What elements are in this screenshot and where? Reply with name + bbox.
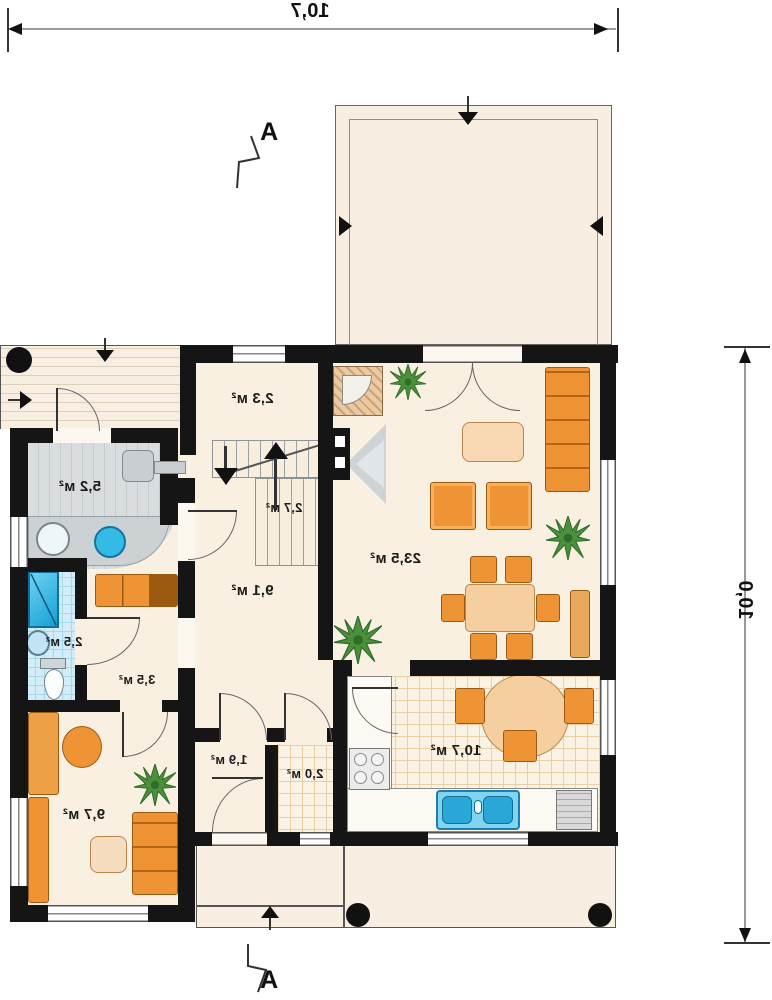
living-sofa xyxy=(545,367,590,492)
dining-chair xyxy=(470,556,497,583)
dining-chair xyxy=(441,594,465,622)
wall-vestibule-right xyxy=(160,428,178,525)
window xyxy=(600,460,616,585)
stairs-down-arrow-stem xyxy=(224,446,227,470)
dim-arrow-right-icon xyxy=(594,23,608,35)
wall-kitchen-left xyxy=(333,660,347,832)
porch-arrow-down-icon xyxy=(96,350,114,362)
coffee-table xyxy=(462,422,524,462)
dim-line-right xyxy=(744,348,746,942)
kitchen-sink xyxy=(436,790,520,830)
window xyxy=(428,832,528,846)
dining-chair xyxy=(470,633,497,660)
terrace-divider xyxy=(343,846,345,928)
dim-arrow-down-icon xyxy=(739,928,751,942)
burner-icon xyxy=(354,753,367,766)
french-door-opening xyxy=(423,345,522,363)
dim-arrow-left-icon xyxy=(8,23,22,35)
window xyxy=(233,345,285,363)
window xyxy=(10,517,28,567)
wall-hall-left-low xyxy=(178,668,195,922)
section-label-top: A xyxy=(260,118,278,147)
room-label-storage: 1,9 м² xyxy=(194,752,264,767)
back-door-opening xyxy=(212,832,267,846)
floor-plan: 10,7 10,0 A A xyxy=(0,0,772,1000)
washing-machine-duct xyxy=(154,461,186,474)
terrace-column xyxy=(346,903,370,927)
kitchen-chair xyxy=(455,688,485,724)
plant-icon xyxy=(390,364,426,400)
dining-chair xyxy=(536,594,560,622)
burner-icon xyxy=(371,753,384,766)
dim-arrow-up-icon xyxy=(739,349,751,363)
shower xyxy=(28,571,59,628)
terrace-inner-edge xyxy=(349,119,598,345)
terrace-column xyxy=(588,903,612,927)
room-label-living: 23,5 м² xyxy=(348,550,443,567)
stairs-down-arrow-icon xyxy=(214,468,238,485)
burner-icon xyxy=(354,771,367,784)
room-label-kitchen: 10,7 м² xyxy=(410,742,502,759)
sink-basin xyxy=(442,796,472,824)
wall-wc-left xyxy=(180,345,196,455)
window xyxy=(300,832,330,846)
window xyxy=(10,798,28,886)
room-label-stairs: 2,7 м² xyxy=(248,500,320,515)
plant-icon xyxy=(546,516,590,560)
wall-bath-right-up xyxy=(75,572,87,619)
wall-bedroom-top-b xyxy=(162,700,178,712)
dishwasher xyxy=(556,790,592,830)
washing-machine xyxy=(122,450,154,482)
wall-bath-top xyxy=(25,558,87,572)
dim-line-top xyxy=(10,28,616,30)
room-label-bath: 2,5 м² xyxy=(24,634,104,649)
window xyxy=(48,905,148,922)
desk-chair xyxy=(62,726,102,768)
room-label-vestibule: 5,2 м² xyxy=(38,478,122,495)
porch-arrow-stem2 xyxy=(8,399,20,401)
corridor-opening xyxy=(178,618,195,668)
plant-icon xyxy=(134,764,176,806)
utility-basin-blue xyxy=(94,526,126,558)
bath-door-leaf xyxy=(87,617,140,619)
wall-hall-stub xyxy=(178,478,195,503)
dim-ext-right xyxy=(617,8,619,52)
entry-arrow-stem xyxy=(269,918,271,930)
stove xyxy=(349,748,390,790)
room-label-pantry: 2,0 м² xyxy=(270,766,340,781)
wall-bedroom-top-a xyxy=(28,700,120,712)
wall-kitchen-top-b xyxy=(410,660,600,676)
toilet-tank xyxy=(40,658,66,669)
flue-icon xyxy=(335,436,345,447)
dining-chair xyxy=(506,633,533,660)
room-label-hall: 9,1 м² xyxy=(210,582,295,599)
dim-ext-bottom xyxy=(724,942,770,944)
porch-door-leaf xyxy=(56,388,58,431)
wall-kitchen-top-a xyxy=(333,660,352,676)
sideboard xyxy=(570,590,590,658)
kitchen-chair xyxy=(503,730,537,762)
room-label-wc: 2,3 м² xyxy=(205,390,300,407)
terrace-arrow-stem xyxy=(467,96,469,112)
storage-door-leaf xyxy=(219,693,221,740)
wall-hall-bottom-a xyxy=(192,728,220,742)
wall-living-left xyxy=(318,363,333,660)
sink-basin xyxy=(483,796,513,824)
utility-basin xyxy=(36,522,70,556)
terrace-arrow-right-icon xyxy=(339,216,352,236)
kitchen-chair xyxy=(564,688,594,724)
wall-hall-left-mid xyxy=(178,560,195,618)
room-label-bedroom: 9,7 м² xyxy=(46,806,122,823)
hall-door-leaf xyxy=(188,510,237,512)
pantry-door-leaf xyxy=(284,693,286,740)
bedroom-table xyxy=(90,836,127,873)
wall-storage-pantry-divider xyxy=(265,745,278,832)
window xyxy=(600,680,616,755)
bedroom-door-leaf xyxy=(122,712,124,757)
terrace-arrow-down-icon xyxy=(458,112,478,125)
kitchen-door-leaf xyxy=(352,687,398,689)
dim-label-width: 10,7 xyxy=(270,0,350,26)
dining-chair xyxy=(505,556,532,583)
dim-ext-top xyxy=(724,346,770,348)
entry-arrow-up-icon xyxy=(261,906,279,918)
shower-drain-line-icon xyxy=(30,573,57,626)
porch-column xyxy=(6,347,32,373)
porch-arrow-stem xyxy=(104,338,106,350)
dim-label-height: 10,0 xyxy=(715,573,772,627)
desk xyxy=(28,712,59,795)
pantry-floor xyxy=(278,745,333,832)
bedroom-sofa xyxy=(132,812,178,895)
flue-icon xyxy=(335,457,345,468)
back-door-leaf xyxy=(212,777,263,779)
garden-terrace xyxy=(196,846,616,928)
burner-icon xyxy=(371,771,384,784)
plant-icon xyxy=(334,616,382,664)
armchair xyxy=(486,482,532,530)
section-label-bottom: A xyxy=(260,966,278,995)
wall-hall-bottom-b xyxy=(267,728,285,742)
stairs-up-arrow-icon xyxy=(264,442,288,459)
corridor-wardrobe xyxy=(95,574,178,607)
wall-right xyxy=(600,345,616,846)
faucet-icon xyxy=(474,800,482,814)
porch-arrow-right-icon xyxy=(20,391,32,409)
chimney xyxy=(330,428,350,480)
room-label-corridor: 3,5 м² xyxy=(100,672,174,687)
terrace-arrow-left-icon xyxy=(590,216,603,236)
armchair xyxy=(430,482,476,530)
dining-table xyxy=(465,584,535,632)
